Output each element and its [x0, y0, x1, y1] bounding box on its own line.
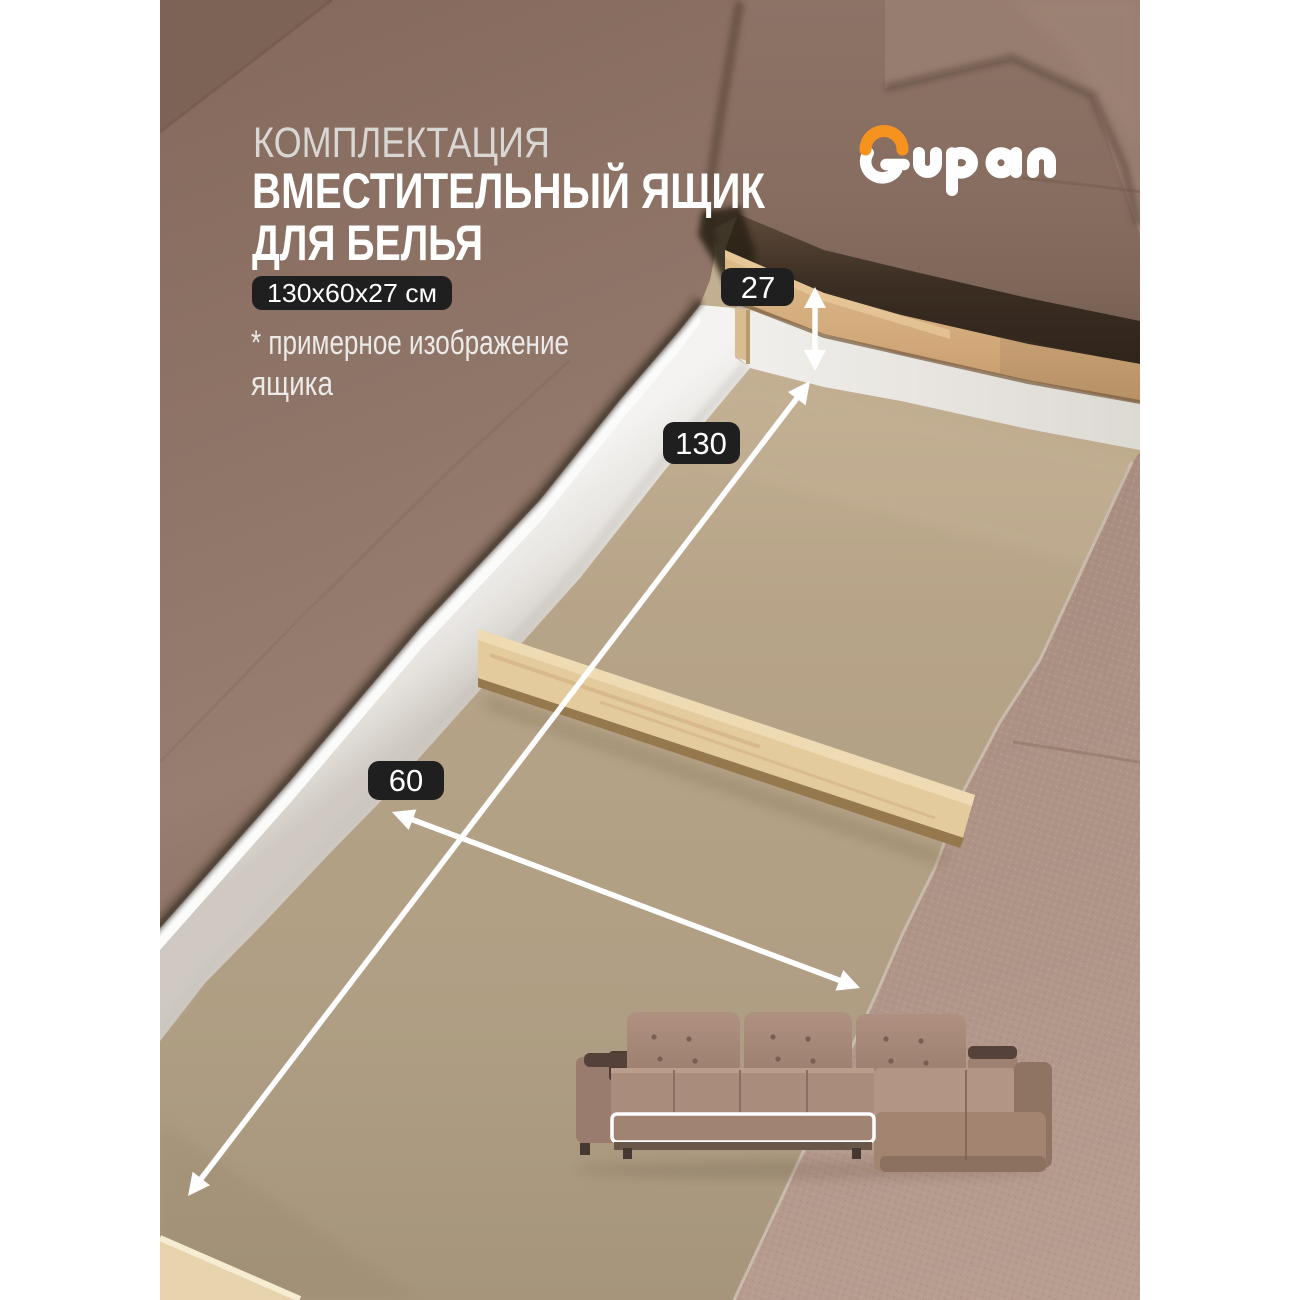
svg-text:ВМЕСТИТЕЛЬНЫЙ ЯЩИК: ВМЕСТИТЕЛЬНЫЙ ЯЩИК — [252, 162, 765, 219]
svg-text:КОМПЛЕКТАЦИЯ: КОМПЛЕКТАЦИЯ — [253, 119, 550, 167]
svg-text:60: 60 — [389, 763, 423, 798]
svg-text:ящика: ящика — [251, 365, 333, 403]
svg-text:130: 130 — [675, 426, 727, 461]
svg-text:130x60x27 см: 130x60x27 см — [267, 278, 437, 308]
svg-text:ДЛЯ БЕЛЬЯ: ДЛЯ БЕЛЬЯ — [252, 215, 483, 271]
svg-text:* примерное изображение: * примерное изображение — [251, 324, 569, 362]
svg-text:27: 27 — [741, 270, 775, 305]
